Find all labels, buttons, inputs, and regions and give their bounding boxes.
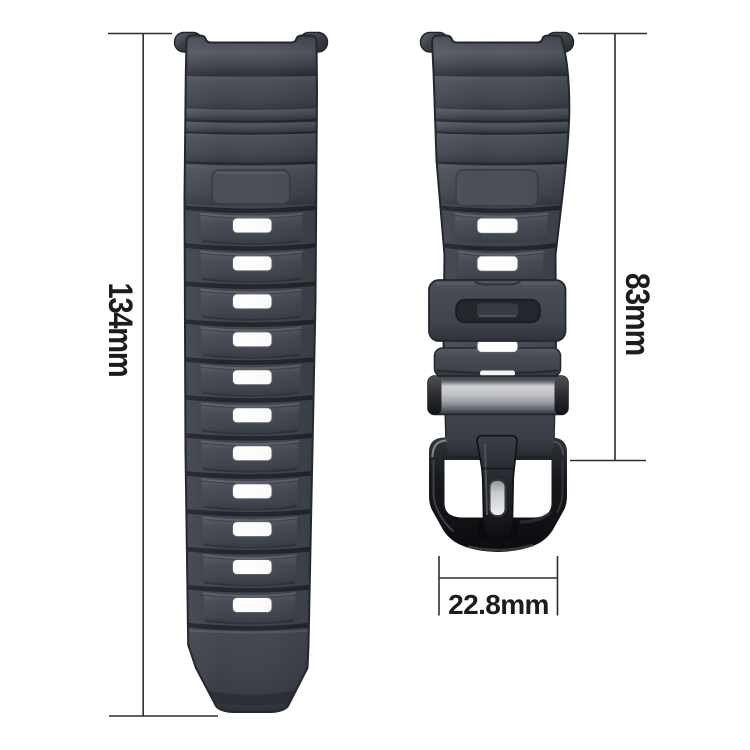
svg-text:83mm: 83mm bbox=[618, 273, 656, 355]
svg-text:22.8mm: 22.8mm bbox=[448, 589, 549, 620]
svg-text:134mm: 134mm bbox=[102, 283, 141, 377]
